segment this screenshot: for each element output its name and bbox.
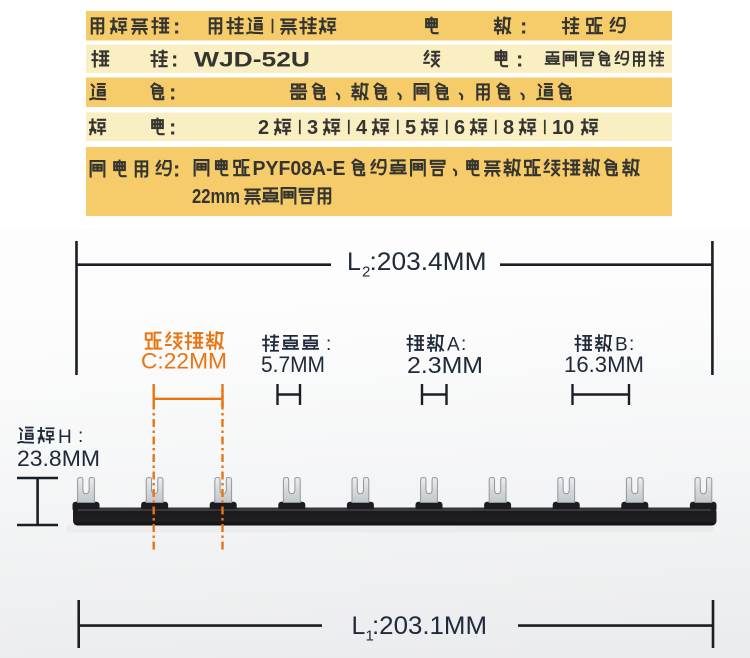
svg-text::: : <box>78 426 83 447</box>
svg-text::: : <box>326 334 331 355</box>
svg-text::: : <box>520 14 527 39</box>
svg-text::: : <box>169 115 176 140</box>
svg-text::: : <box>171 47 178 72</box>
svg-text:2.3MM: 2.3MM <box>407 352 483 378</box>
svg-text:PYF08A-E: PYF08A-E <box>253 158 346 180</box>
svg-text::203.1MM: :203.1MM <box>372 612 487 640</box>
svg-text:6: 6 <box>454 117 465 139</box>
svg-text:4: 4 <box>356 117 368 139</box>
svg-text::: : <box>516 47 523 72</box>
svg-text:8: 8 <box>503 117 514 139</box>
svg-text:L: L <box>347 248 361 276</box>
svg-text:22mm: 22mm <box>192 186 240 208</box>
svg-text:10: 10 <box>552 117 574 139</box>
svg-text:C:22MM: C:22MM <box>141 349 227 374</box>
svg-text:23.8MM: 23.8MM <box>17 446 100 471</box>
svg-text:2: 2 <box>258 117 269 139</box>
svg-text:5.7MM: 5.7MM <box>261 352 325 377</box>
svg-text:5: 5 <box>405 117 416 139</box>
svg-text:3: 3 <box>307 117 318 139</box>
svg-text::: : <box>173 14 180 39</box>
svg-text::203.4MM: :203.4MM <box>370 248 487 276</box>
svg-text::: : <box>169 80 176 105</box>
svg-text:16.3MM: 16.3MM <box>564 352 644 377</box>
svg-text:L: L <box>352 612 366 640</box>
svg-text:H: H <box>58 427 72 448</box>
svg-text::: : <box>173 157 180 182</box>
svg-text:WJD-52U: WJD-52U <box>194 49 310 72</box>
